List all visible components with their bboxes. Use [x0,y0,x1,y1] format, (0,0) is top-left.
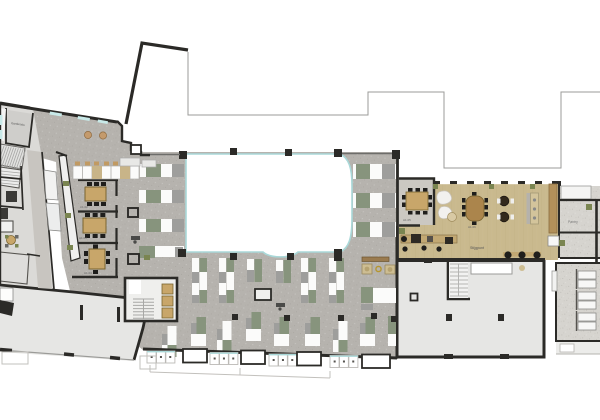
svg-text:A1.04: A1.04 [84,271,92,275]
svg-text:A1.06: A1.06 [468,225,476,229]
svg-text:A1.03: A1.03 [79,236,87,240]
svg-text:A1.02: A1.02 [80,205,88,209]
svg-text:A1.05: A1.05 [403,218,411,222]
svg-text:Stijgpunt: Stijgpunt [470,246,484,250]
svg-text:Pantry: Pantry [568,220,578,224]
